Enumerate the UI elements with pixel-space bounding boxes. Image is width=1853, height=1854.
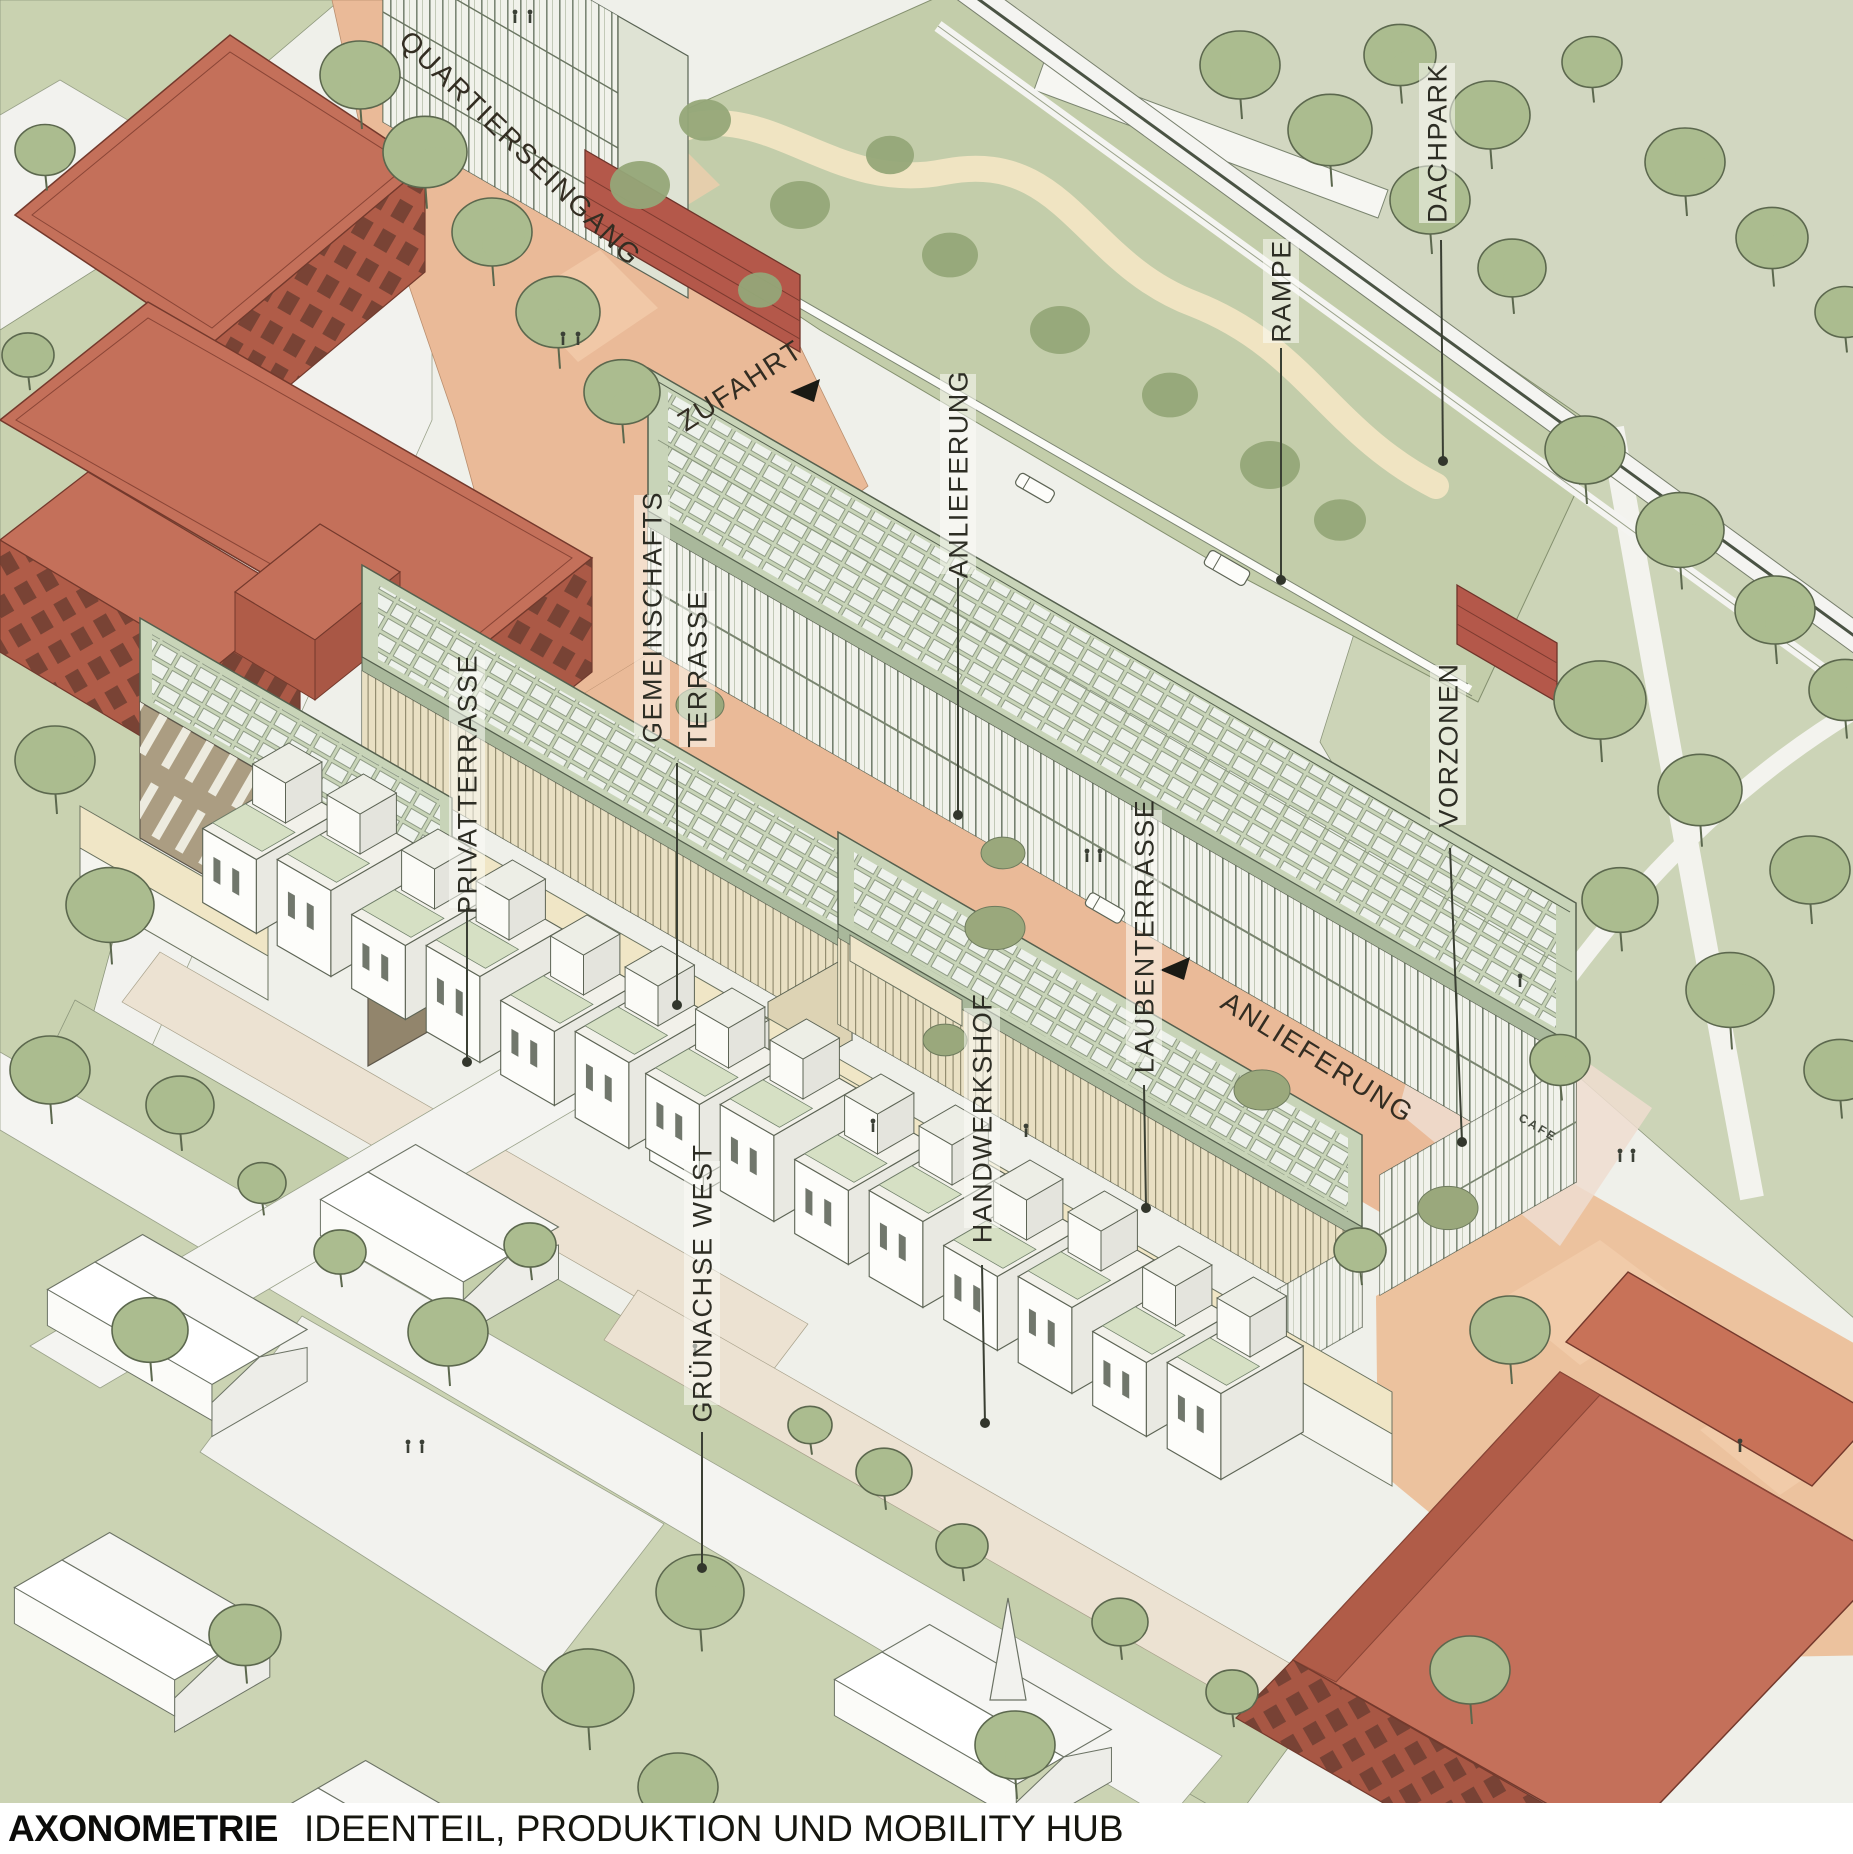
window <box>530 1040 537 1068</box>
svg-text:GEMEINSCHAFTS: GEMEINSCHAFTS <box>638 491 668 743</box>
window <box>954 1274 961 1302</box>
roof-tree <box>1030 306 1090 354</box>
leader-dot <box>672 1000 682 1010</box>
window <box>511 1029 518 1057</box>
window <box>1122 1371 1129 1399</box>
window <box>731 1137 738 1165</box>
window <box>880 1223 887 1251</box>
window <box>899 1233 906 1261</box>
label-gemeinschaftsterrasse-2: TERRASSE <box>679 590 715 748</box>
window <box>586 1064 593 1092</box>
leader-dot <box>980 1418 990 1428</box>
label-vorzonen: VORZONEN <box>1430 662 1466 827</box>
leader-dot <box>1438 456 1448 466</box>
window <box>288 892 295 920</box>
leader-dot <box>1141 1203 1151 1213</box>
caption-bar: AXONOMETRIE IDEENTEIL, PRODUKTION UND MO… <box>0 1803 1853 1854</box>
svg-text:LAUBENTERRASSE: LAUBENTERRASSE <box>1130 799 1160 1074</box>
bush <box>965 906 1025 949</box>
window <box>437 978 444 1006</box>
leader-dot <box>1457 1137 1467 1147</box>
svg-text:TERRASSE: TERRASSE <box>683 590 713 748</box>
caption-title: AXONOMETRIE <box>8 1808 278 1850</box>
svg-text:DACHPARK: DACHPARK <box>1423 63 1453 223</box>
svg-text:ANLIEFERUNG: ANLIEFERUNG <box>944 370 974 579</box>
axonometric-plan-page: CAFE <box>0 0 1853 1854</box>
label-handwerkshof: HANDWERKSHOF <box>964 993 1000 1244</box>
window <box>307 902 314 930</box>
label-gemeinschaftsterrasse: GEMEINSCHAFTS <box>634 491 670 743</box>
roof-tree <box>679 99 731 141</box>
bush <box>1418 1186 1478 1229</box>
window <box>362 943 369 971</box>
window <box>605 1074 612 1102</box>
window <box>973 1285 980 1313</box>
leader-dot <box>697 1563 707 1573</box>
roof-tree <box>922 233 978 278</box>
leader-dot <box>462 1057 472 1067</box>
window <box>381 954 388 982</box>
window <box>1197 1405 1204 1433</box>
axonometric-drawing: CAFE <box>0 0 1853 1803</box>
roof-tree <box>610 161 670 209</box>
roof-tree <box>738 272 782 307</box>
label-dachpark: DACHPARK <box>1419 63 1455 223</box>
label-rampe: RAMPE <box>1263 239 1299 343</box>
window <box>675 1113 682 1141</box>
window <box>656 1102 663 1130</box>
label-privatterrasse: PRIVATTERRASSE <box>449 654 485 914</box>
bush <box>923 1024 967 1056</box>
window <box>1178 1395 1185 1423</box>
label-laubenterrasse: LAUBENTERRASSE <box>1126 799 1162 1074</box>
leader-dot <box>1276 575 1286 585</box>
window <box>213 857 220 885</box>
bush <box>981 837 1025 869</box>
svg-text:RAMPE: RAMPE <box>1267 239 1297 343</box>
svg-text:VORZONEN: VORZONEN <box>1434 662 1464 827</box>
label-gruenachse-west: GRÜNACHSE WEST <box>684 1143 720 1422</box>
roof-tree <box>770 181 830 229</box>
roof-tree <box>866 136 914 174</box>
window <box>1103 1360 1110 1388</box>
roof-tree <box>1314 499 1366 541</box>
window <box>805 1188 812 1216</box>
svg-text:PRIVATTERRASSE: PRIVATTERRASSE <box>453 654 483 914</box>
caption-subtitle: IDEENTEIL, PRODUKTION UND MOBILITY HUB <box>304 1808 1124 1850</box>
svg-text:HANDWERKSHOF: HANDWERKSHOF <box>968 993 998 1244</box>
window <box>1029 1309 1036 1337</box>
window <box>824 1199 831 1227</box>
label-anlieferung-top: ANLIEFERUNG <box>940 370 976 579</box>
window <box>750 1147 757 1175</box>
roof-tree <box>1240 441 1300 489</box>
svg-text:GRÜNACHSE WEST: GRÜNACHSE WEST <box>688 1143 718 1422</box>
window <box>232 868 239 896</box>
roof-tree <box>1142 373 1198 418</box>
leader-dot <box>953 810 963 820</box>
window <box>456 988 463 1016</box>
window <box>1048 1319 1055 1347</box>
bush <box>1234 1070 1290 1110</box>
